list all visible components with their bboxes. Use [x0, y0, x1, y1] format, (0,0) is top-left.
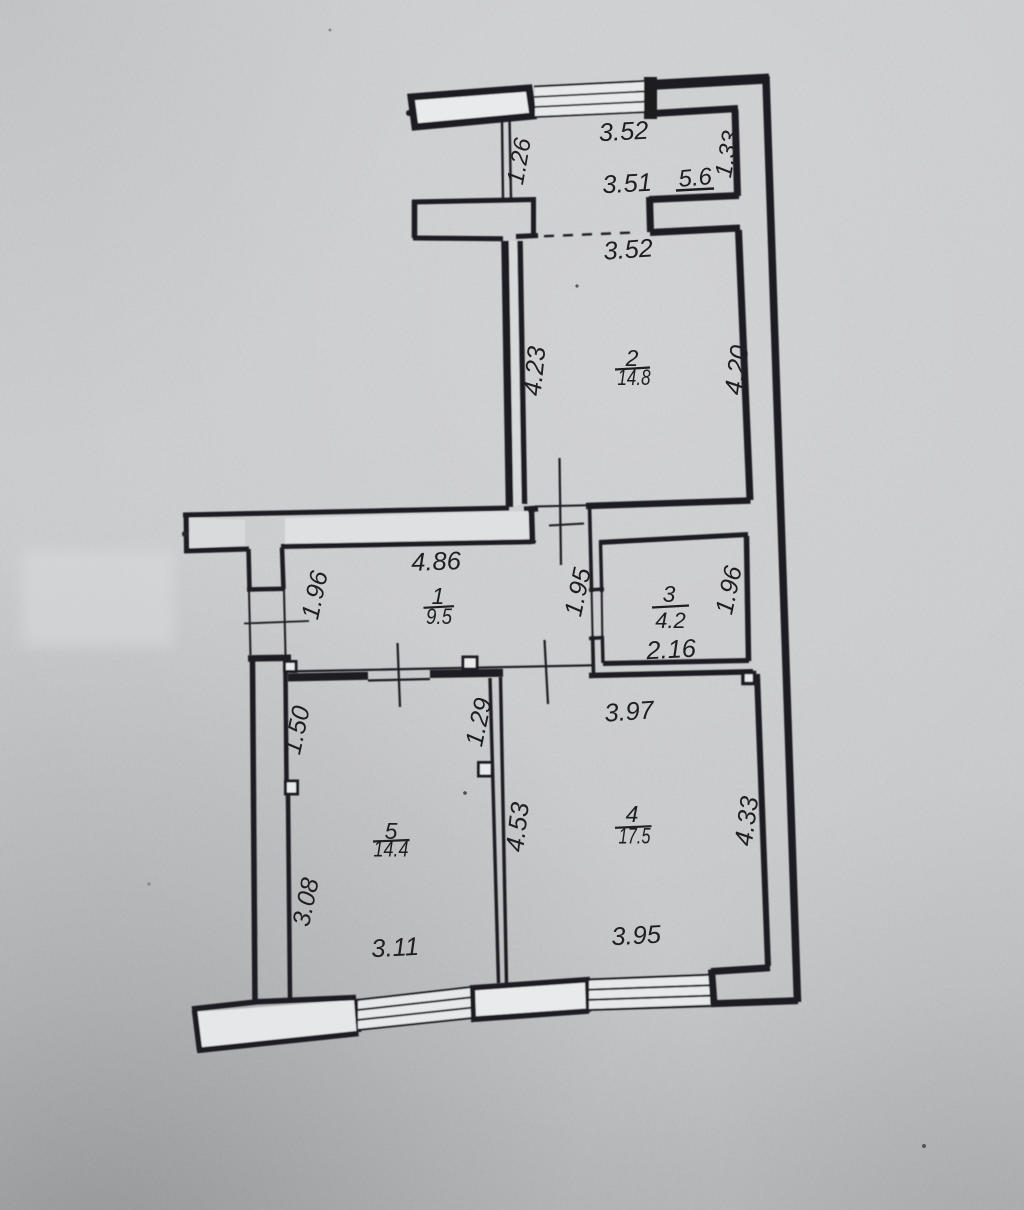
svg-text:14.8: 14.8 — [618, 365, 652, 390]
svg-text:3: 3 — [663, 581, 676, 607]
svg-text:2.16: 2.16 — [645, 635, 698, 666]
svg-text:4.23: 4.23 — [518, 345, 551, 397]
svg-text:9.5: 9.5 — [426, 604, 453, 629]
svg-text:14.4: 14.4 — [374, 837, 409, 862]
svg-text:4.86: 4.86 — [411, 547, 462, 577]
svg-text:3.97: 3.97 — [603, 696, 655, 727]
svg-text:3.51: 3.51 — [602, 169, 653, 200]
svg-text:4.2: 4.2 — [655, 608, 686, 633]
svg-text:17.5: 17.5 — [619, 824, 652, 849]
svg-text:3.95: 3.95 — [611, 921, 663, 952]
svg-text:3.52: 3.52 — [598, 117, 649, 148]
svg-text:3.11: 3.11 — [371, 933, 420, 963]
svg-text:3.52: 3.52 — [602, 234, 653, 265]
